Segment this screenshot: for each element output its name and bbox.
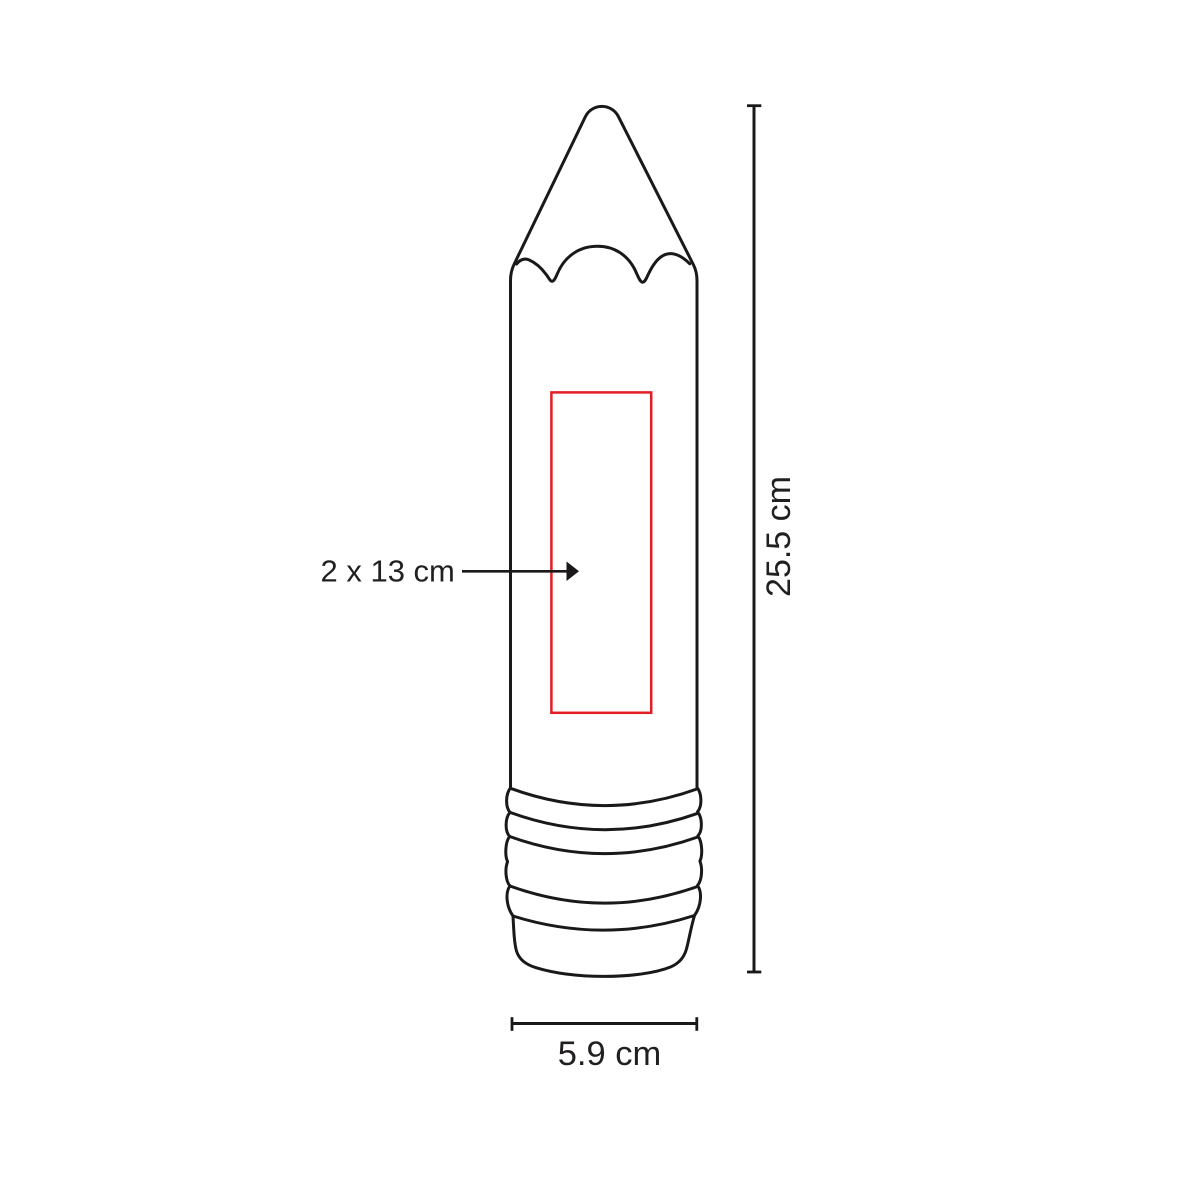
svg-text:2 x 13 cm: 2 x 13 cm [321, 554, 455, 589]
svg-text:25.5 cm: 25.5 cm [760, 476, 798, 597]
svg-text:5.9 cm: 5.9 cm [558, 1035, 662, 1073]
